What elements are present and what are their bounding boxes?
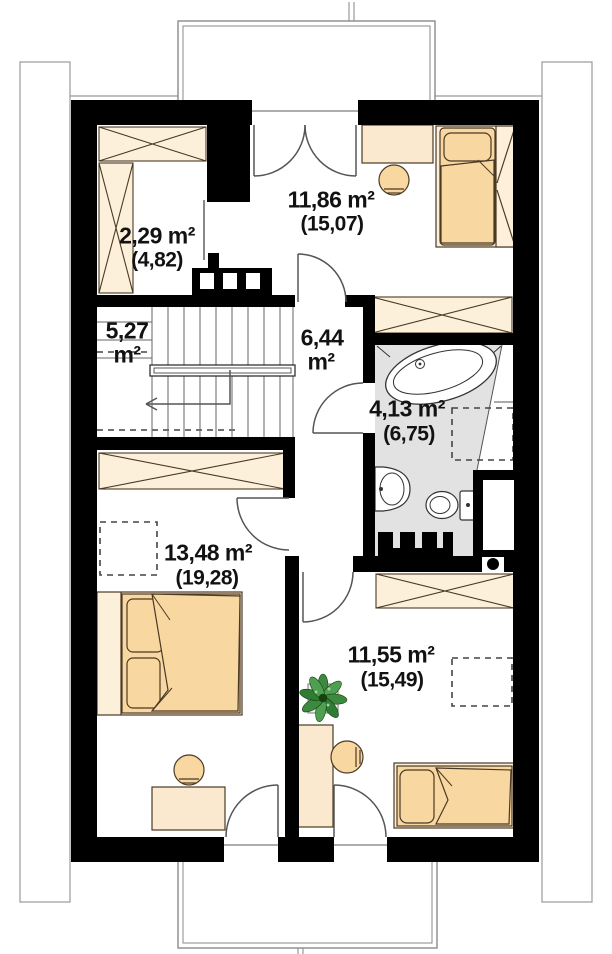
bed-double-icon (97, 592, 242, 715)
wardrobe-icon (99, 127, 206, 161)
balcony-door-arc (334, 785, 386, 837)
room-label-staircase-area: 5,27 (106, 320, 149, 343)
balcony-top (178, 21, 435, 111)
wall (358, 100, 539, 125)
room-label-wardrobe-gross: (4,82) (131, 250, 183, 271)
roof-edge-right (542, 62, 592, 902)
plant-icon (299, 674, 348, 723)
wardrobe-icon (372, 297, 512, 333)
room-label-hallway-area: 6,44 (301, 327, 344, 350)
door-arc (313, 383, 363, 433)
desk-icon (362, 125, 433, 163)
wall (283, 437, 295, 498)
chimney-stub (208, 253, 219, 269)
room-label-bathroom-gross: (6,75) (383, 424, 435, 445)
wall (71, 837, 224, 862)
storage-niche (473, 470, 514, 560)
room-label-bedroom-left-area: 13,48 m² (164, 542, 252, 565)
stool-icon (379, 165, 409, 195)
door-arc (298, 254, 346, 302)
wall (278, 837, 334, 862)
door-arc (303, 572, 353, 622)
room-label-bathroom-area: 4,13 m² (369, 398, 445, 421)
wardrobe-icon (376, 574, 514, 608)
stool-icon (174, 755, 204, 785)
balcony-door-arc (226, 785, 278, 837)
desk-icon (152, 787, 225, 830)
wall (285, 556, 299, 837)
stool-icon (331, 741, 363, 773)
room-label-bedroom-top-area: 11,86 m² (288, 189, 375, 212)
wall (71, 100, 252, 125)
bed-single-icon (394, 763, 514, 828)
under-eave-shelf (496, 126, 514, 247)
toilet-icon (426, 491, 476, 520)
bed-single-icon (436, 126, 514, 247)
floor-plan-drawing (0, 0, 612, 954)
wall (387, 837, 539, 862)
room-label-staircase-unit: m² (113, 344, 140, 367)
stair-railing (150, 365, 295, 376)
room-label-bedroom-left-gross: (19,28) (175, 568, 238, 589)
room-label-bedroom-top-gross: (15,07) (300, 214, 363, 235)
roof-edge-left (20, 62, 70, 902)
skylight-dashed-left (100, 522, 157, 575)
balcony-door-arc (254, 125, 356, 176)
floor-plan: 2,29 m² (4,82) 11,86 m² (15,07) 5,27 m² … (0, 0, 612, 954)
wall (71, 100, 97, 862)
skylight-dashed-right (452, 658, 512, 706)
room-label-bedroom-bottom-gross: (15,49) (360, 670, 423, 691)
wall (363, 433, 375, 558)
desk-icon (297, 725, 333, 827)
wall (207, 125, 250, 202)
room-label-wardrobe-area: 2,29 m² (119, 225, 195, 248)
room-label-bedroom-bottom-area: 11,55 m² (348, 644, 435, 667)
chimney-icon (192, 268, 272, 295)
wall (375, 333, 514, 345)
wall (363, 295, 375, 383)
wall (513, 100, 539, 862)
room-label-hallway-unit: m² (307, 351, 334, 374)
wall (96, 437, 295, 450)
wall (96, 295, 295, 307)
drain-point (487, 558, 499, 570)
wardrobe-icon (99, 453, 285, 489)
